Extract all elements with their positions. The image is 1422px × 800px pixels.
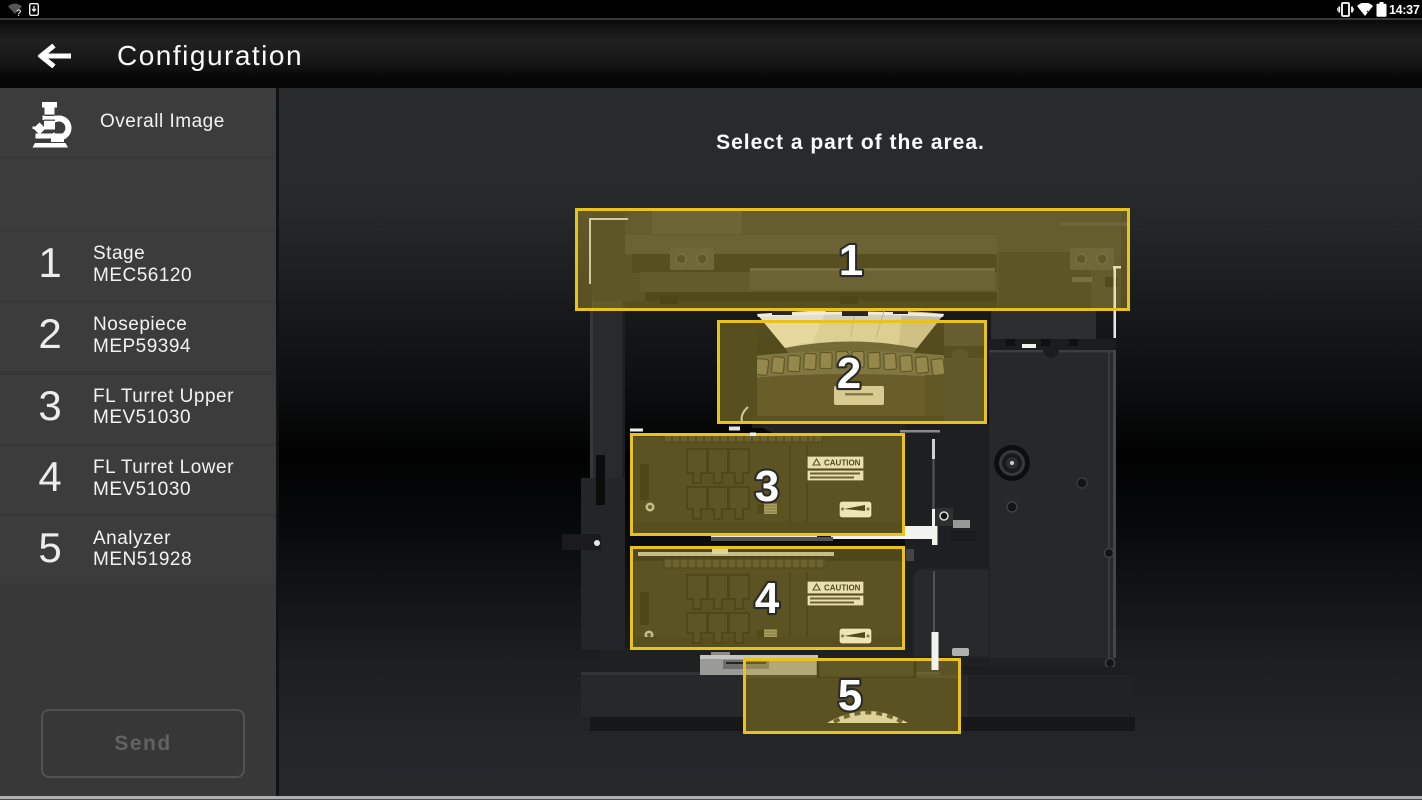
svg-text:4: 4 bbox=[755, 574, 780, 623]
svg-text:5: 5 bbox=[838, 671, 862, 720]
svg-text:1: 1 bbox=[839, 236, 863, 285]
svg-text:3: 3 bbox=[755, 462, 779, 511]
svg-text:2: 2 bbox=[837, 349, 861, 398]
svg-text:?: ? bbox=[16, 8, 22, 17]
